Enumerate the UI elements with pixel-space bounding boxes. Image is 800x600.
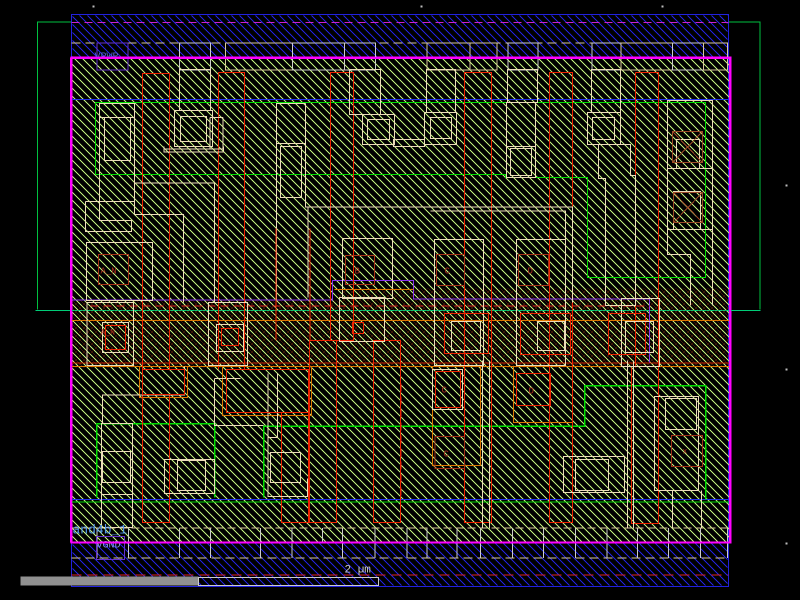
svg-text:D: D [529, 387, 534, 397]
svg-text:2 µm: 2 µm [345, 565, 372, 577]
svg-text:and4b_1: and4b_1 [73, 523, 128, 538]
svg-text:C: C [442, 386, 448, 396]
svg-text:D: D [528, 267, 533, 277]
svg-text:A_N: A_N [101, 267, 117, 277]
svg-text:x: x [683, 448, 688, 457]
svg-text:B: B [355, 267, 361, 277]
svg-text:A_N: A_N [101, 329, 116, 338]
svg-text:C: C [444, 450, 450, 460]
svg-text:C: C [445, 267, 451, 277]
